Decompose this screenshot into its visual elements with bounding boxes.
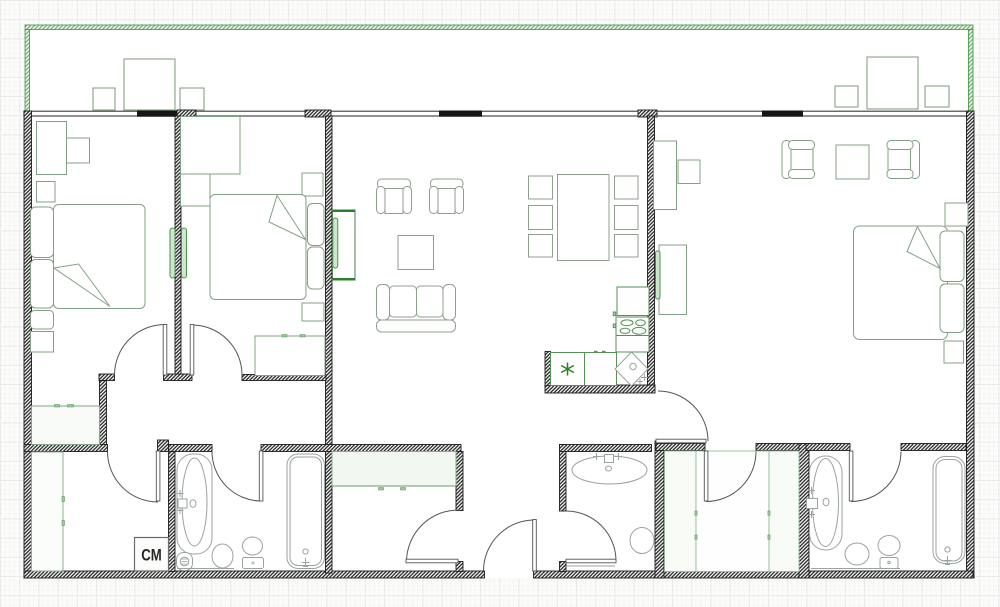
svg-text:CM: CM [141, 546, 162, 565]
